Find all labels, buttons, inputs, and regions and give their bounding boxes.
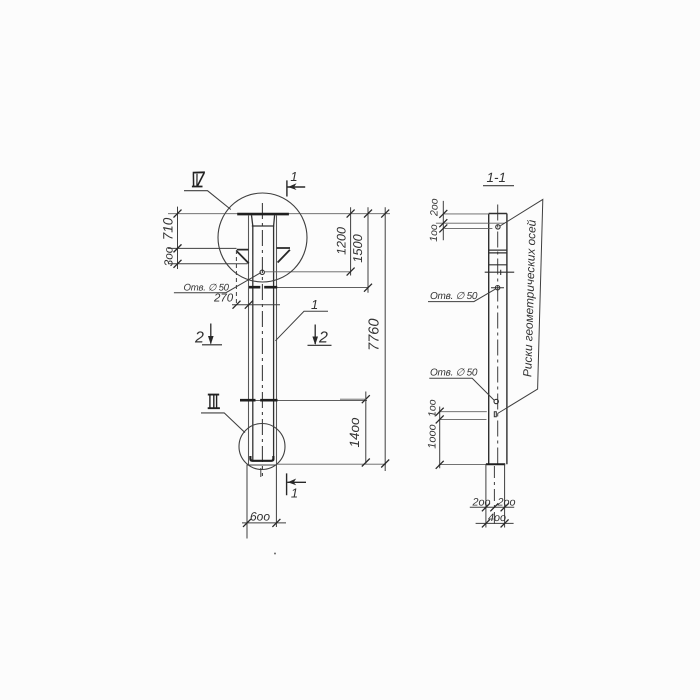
svg-text:1oo: 1oo bbox=[428, 224, 440, 242]
svg-text:1ooo: 1ooo bbox=[426, 424, 438, 448]
svg-text:6oo: 6oo bbox=[250, 509, 270, 523]
svg-text:1200: 1200 bbox=[335, 227, 349, 255]
svg-text:Отв. ∅ 50: Отв. ∅ 50 bbox=[430, 368, 478, 379]
svg-text:2oo: 2oo bbox=[471, 497, 490, 509]
svg-text:14oo: 14oo bbox=[347, 417, 362, 448]
svg-text:1oo: 1oo bbox=[426, 399, 438, 417]
svg-text:2: 2 bbox=[194, 329, 204, 346]
svg-text:2: 2 bbox=[318, 329, 328, 346]
svg-text:2oo: 2oo bbox=[496, 496, 515, 508]
svg-text:1500: 1500 bbox=[350, 233, 365, 262]
svg-text:Отв. ∅ 50: Отв. ∅ 50 bbox=[430, 291, 478, 302]
svg-text:270: 270 bbox=[213, 292, 234, 304]
svg-text:710: 710 bbox=[161, 217, 176, 240]
svg-text:1-1: 1-1 bbox=[487, 170, 507, 185]
svg-text:4oo: 4oo bbox=[488, 512, 506, 524]
svg-text:7760: 7760 bbox=[367, 319, 383, 351]
svg-text:3oo: 3oo bbox=[162, 246, 176, 266]
svg-text:1: 1 bbox=[311, 297, 318, 312]
svg-text:1: 1 bbox=[290, 169, 297, 184]
svg-text:1: 1 bbox=[291, 485, 298, 500]
svg-text:2oo: 2oo bbox=[429, 198, 441, 217]
